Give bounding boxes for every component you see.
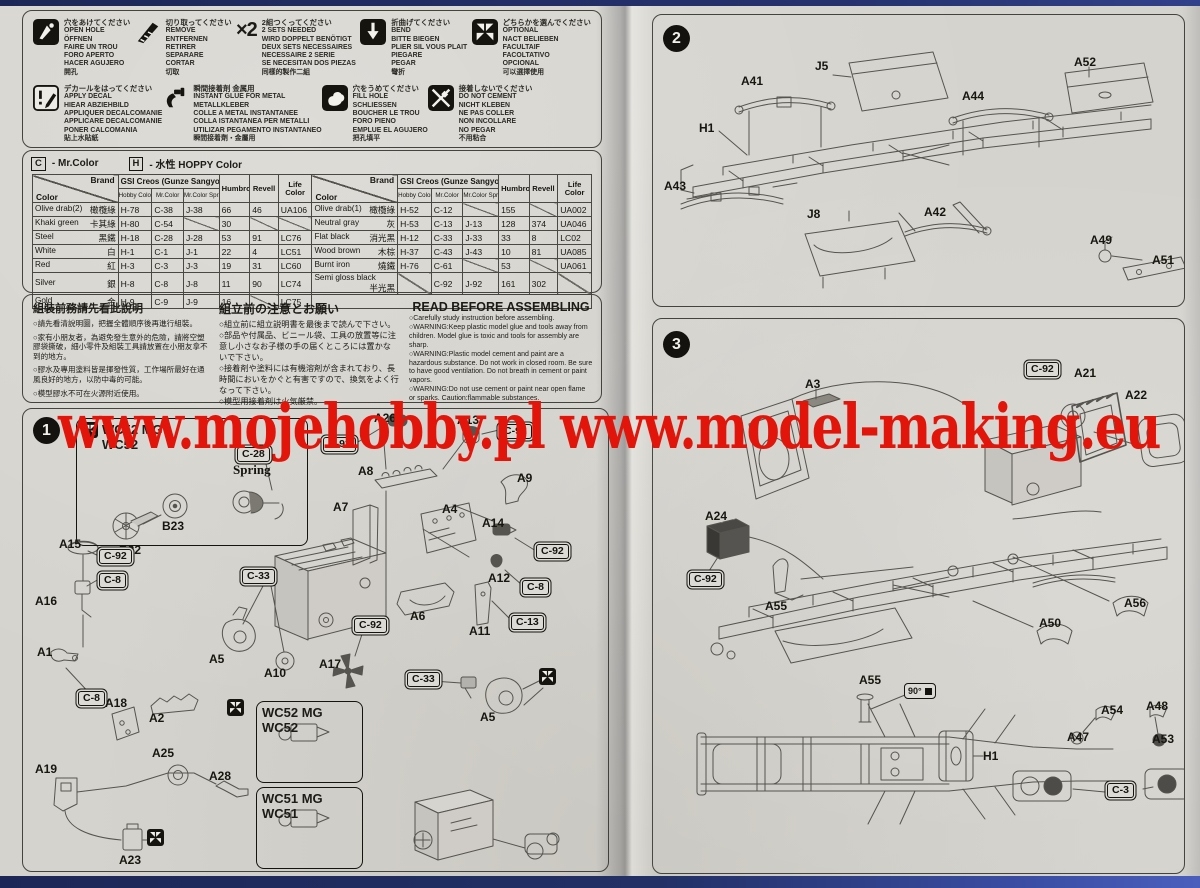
read-before-item: ○膠水及專用塗料皆是揮發性質，工作場所最好在通風良好的地方，以防中毒的可能。 <box>33 365 209 384</box>
part-label-a5: A5 <box>209 652 224 666</box>
part-label-a8: A8 <box>358 464 373 478</box>
part-label-a21: A21 <box>1074 366 1096 380</box>
part-label-a48: A48 <box>1146 699 1168 713</box>
part-label-a43: A43 <box>664 179 686 193</box>
legend-entry-open-hole: 穴をあけてくださいOPEN HOLEÖFFNENFAIRE UN TROUFOR… <box>33 19 130 77</box>
hoppy-color-key-box: H <box>129 157 144 171</box>
instruction-sheet-scan: 穴をあけてくださいOPEN HOLEÖFFNENFAIRE UN TROUFOR… <box>0 0 1200 888</box>
paint-callout-c-92: C-92 <box>689 572 722 587</box>
legend-lines: 折曲げてくださいBENDBITTE BIEGENPLIER SIL VOUS P… <box>391 19 467 77</box>
legend-row: 穴をあけてくださいOPEN HOLEÖFFNENFAIRE UN TROUFOR… <box>23 11 601 77</box>
paint-callout-c-13: C-13 <box>511 615 544 630</box>
legend-entry-remove: 切り取ってくださいREMOVEENTFERNENRETIRERSEPARAREC… <box>135 19 232 77</box>
optional-icon <box>472 19 498 45</box>
part-label-a18: A18 <box>105 696 127 710</box>
part-label-a1: A1 <box>37 645 52 659</box>
legend-entry-x2: ×22組つくってください2 SETS NEEDEDWIRD DOPPELT BE… <box>236 19 356 77</box>
part-label-a47: A47 <box>1067 730 1089 744</box>
paint-color-chart-panel: C - Mr.Color H - 水性 HOPPY Color BrandCol… <box>22 150 602 293</box>
paint-callout-c-33: C-33 <box>242 569 275 584</box>
part-label-b23: B23 <box>162 519 184 533</box>
part-label-j5: J5 <box>815 59 828 73</box>
paint-callout-c-92: C-92 <box>354 618 387 633</box>
paint-callout-c-8: C-8 <box>522 580 549 595</box>
step-2-labels: A41J5H1A43J8A42A44A52A49A51 <box>653 15 1184 306</box>
hoppy-color-key-label: - 水性 HOPPY Color <box>149 156 242 171</box>
legend-lines: デカールをはってくださいAPPLY DECALHIEAR ABZIEHBILDA… <box>64 85 162 143</box>
step-2-number: 2 <box>663 25 690 52</box>
legend-lines: 切り取ってくださいREMOVEENTFERNENRETIRERSEPARAREC… <box>166 19 232 77</box>
bend-icon <box>360 19 386 45</box>
part-label-a3: A3 <box>805 377 820 391</box>
x2-icon: ×2 <box>236 19 257 42</box>
part-label-a17: A17 <box>319 657 341 671</box>
part-label-a53: A53 <box>1152 732 1174 746</box>
part-label-a55: A55 <box>765 599 787 613</box>
part-label-a10: A10 <box>264 666 286 680</box>
read-before-item: ○部品や付属品、ビニール袋、工具の放置等に注意し小さなお子様の手の届くところには… <box>219 330 399 363</box>
part-label-a23: A23 <box>119 853 141 867</box>
part-label-a16: A16 <box>35 594 57 608</box>
part-label-a25: A25 <box>152 746 174 760</box>
legend-lines: 穴をあけてくださいOPEN HOLEÖFFNENFAIRE UN TROUFOR… <box>64 19 130 77</box>
symbol-legend-rows: 穴をあけてくださいOPEN HOLEÖFFNENFAIRE UN TROUFOR… <box>23 11 601 143</box>
read-before-title-en: READ BEFORE ASSEMBLING <box>409 300 593 314</box>
angle-square-icon <box>925 688 932 695</box>
legend-entry-bend: 折曲げてくださいBENDBITTE BIEGENPLIER SIL VOUS P… <box>360 19 467 77</box>
part-label-a11: A11 <box>469 624 490 638</box>
paint-callout-c-8: C-8 <box>99 573 126 588</box>
fill-hole-icon <box>322 85 348 111</box>
remove-icon <box>135 19 161 45</box>
read-before-item: ○Carefully study instruction before asse… <box>409 315 593 324</box>
apply-decal-icon <box>33 85 59 111</box>
paint-callout-c-8: C-8 <box>78 691 105 706</box>
part-label-a50: A50 <box>1039 616 1061 630</box>
read-before-column-zh: 組裝前務請先看此說明○請先看清說明圖，把握全體順序後再進行組裝。○家有小朋友者，… <box>33 300 209 402</box>
legend-lines: 2組つくってください2 SETS NEEDEDWIRD DOPPELT BENÖ… <box>262 19 356 77</box>
do-not-cement-icon <box>428 85 454 111</box>
instant-glue-icon <box>162 85 188 111</box>
part-label-a56: A56 <box>1124 596 1146 610</box>
paint-callout-c-92: C-92 <box>99 549 132 564</box>
step-3-number: 3 <box>663 331 690 358</box>
variant-box-wc51-mg: WC51 MGWC51 <box>256 787 363 869</box>
part-label-a12: A12 <box>488 571 510 585</box>
legend-entry-fill-hole: 穴をうめてくださいFILL HOLESCHLIESSENBOUCHER LE T… <box>322 85 428 143</box>
read-before-assembling-panel: 組裝前務請先看此說明○請先看清說明圖，把握全體順序後再進行組裝。○家有小朋友者，… <box>22 294 602 403</box>
legend-lines: 接着しないでくださいDO NOT CEMENTNICHT KLEBENNE PA… <box>459 85 533 143</box>
variant-box-wc52-mg: WC52 MGWC52 <box>256 701 363 783</box>
top-edge-strip <box>0 0 1200 6</box>
part-label-a54: A54 <box>1101 703 1123 717</box>
part-label-a41: A41 <box>741 74 763 88</box>
part-label-a24: A24 <box>705 509 727 523</box>
legend-row: デカールをはってくださいAPPLY DECALHIEAR ABZIEHBILDA… <box>23 77 535 143</box>
part-label-a42: A42 <box>924 205 946 219</box>
variant-box-lines: WC52 MGWC52 <box>262 705 323 735</box>
part-label-a44: A44 <box>962 89 984 103</box>
part-label-a14: A14 <box>482 516 504 530</box>
assembly-step-2-panel: A41J5H1A43J8A42A44A52A49A51 2 <box>652 14 1185 307</box>
part-label-a6: A6 <box>410 609 425 623</box>
open-hole-icon <box>33 19 59 45</box>
angle-note: 90° <box>904 683 936 699</box>
read-before-column-en: READ BEFORE ASSEMBLING○Carefully study i… <box>409 300 593 404</box>
legend-entry-do-not-cement: 接着しないでくださいDO NOT CEMENTNICHT KLEBENNE PA… <box>428 85 533 143</box>
read-before-item: ○請先看清說明圖，把握全體順序後再進行組裝。 <box>33 319 209 329</box>
part-label-a5: A5 <box>480 710 495 724</box>
assembly-step-1-panel: WC52 MGWC52C-28SpringB22B23A15C-92C-8A16… <box>22 408 609 872</box>
part-label-a51: A51 <box>1152 253 1174 267</box>
read-before-item: ○WARNING:Plastic model cement and paint … <box>409 351 593 387</box>
variant-box-lines: WC51 MGWC51 <box>262 791 323 821</box>
legend-entry-apply-decal: デカールをはってくださいAPPLY DECALHIEAR ABZIEHBILDA… <box>33 85 162 143</box>
paint-key-line: C - Mr.Color H - 水性 HOPPY Color <box>23 151 601 174</box>
read-before-item: ○組立前に組立説明書を最後まで読んで下さい。 <box>219 319 399 330</box>
paint-callout-c-92: C-92 <box>536 544 569 559</box>
part-label-h1: H1 <box>983 749 998 763</box>
legend-lines: 瞬間接着剤 金属用INSTANT GLUE FOR METALMETALLKLE… <box>193 85 321 143</box>
part-label-a55: A55 <box>859 673 881 687</box>
paint-callout-c-92: C-92 <box>1026 362 1059 377</box>
optional-icon <box>227 699 244 716</box>
read-before-item: ○WARNING:Keep plastic model glue and too… <box>409 324 593 351</box>
read-before-title-ja: 組立前の注意とお願い <box>219 300 399 317</box>
part-label-a2: A2 <box>149 711 164 725</box>
part-label-a49: A49 <box>1090 233 1112 247</box>
part-label-a7: A7 <box>333 500 348 514</box>
step-1-labels: WC52 MGWC52C-28SpringB22B23A15C-92C-8A16… <box>23 409 608 871</box>
part-label-a28: A28 <box>209 769 231 783</box>
mr-color-key-label: - Mr.Color <box>52 158 99 169</box>
paint-callout-c-33: C-33 <box>407 672 440 687</box>
annotation-spring: Spring <box>233 462 271 478</box>
bottom-edge-strip <box>0 876 1200 888</box>
paint-callout-c-3: C-3 <box>1107 783 1134 798</box>
part-label-j8: J8 <box>807 207 820 221</box>
read-before-title-zh: 組裝前務請先看此說明 <box>33 300 209 316</box>
watermark: www.mojehobby.pl www.model-making.eu <box>58 390 1160 463</box>
read-before-item: ○家有小朋友者，為避免發生意外的危險，請將空塑膠袋撕破，細小零件及組裝工具請放置… <box>33 333 209 362</box>
part-label-a9: A9 <box>517 471 532 485</box>
symbol-legend-panel: 穴をあけてくださいOPEN HOLEÖFFNENFAIRE UN TROUFOR… <box>22 10 602 148</box>
mr-color-key-box: C <box>31 157 46 171</box>
part-label-a52: A52 <box>1074 55 1096 69</box>
optional-icon <box>539 668 556 685</box>
part-label-a15: A15 <box>59 537 81 551</box>
paint-conversion-table: BrandColorGSI Creos (Gunze Sangyo)Humbro… <box>32 174 592 309</box>
legend-entry-instant-glue: 瞬間接着剤 金属用INSTANT GLUE FOR METALMETALLKLE… <box>162 85 321 143</box>
optional-icon <box>147 829 164 846</box>
part-label-h1: H1 <box>699 121 714 135</box>
page-edge-shadow <box>1182 0 1200 888</box>
step-1-number: 1 <box>33 417 60 444</box>
legend-lines: 穴をうめてくださいFILL HOLESCHLIESSENBOUCHER LE T… <box>353 85 428 143</box>
part-label-a19: A19 <box>35 762 57 776</box>
legend-lines: どちらかを選んでくださいOPTIONALNACT BELIEBENFACULTA… <box>503 19 591 77</box>
part-label-a4: A4 <box>442 502 457 516</box>
legend-entry-optional: どちらかを選んでくださいOPTIONALNACT BELIEBENFACULTA… <box>472 19 591 77</box>
